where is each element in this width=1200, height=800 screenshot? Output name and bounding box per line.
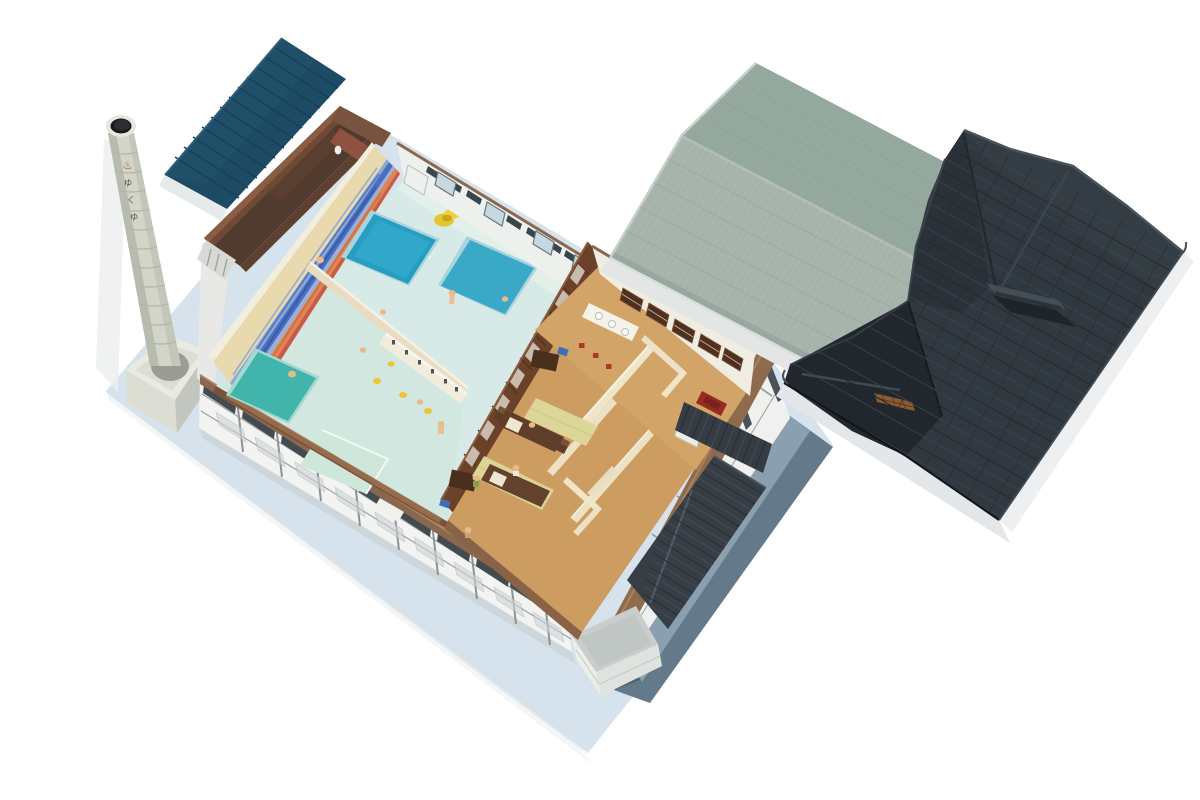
svg-text:ゆ: ゆ [124, 178, 133, 188]
svg-text:く: く [127, 195, 136, 205]
svg-text:ゆ: ゆ [130, 212, 139, 222]
svg-text:♨: ♨ [122, 159, 134, 173]
